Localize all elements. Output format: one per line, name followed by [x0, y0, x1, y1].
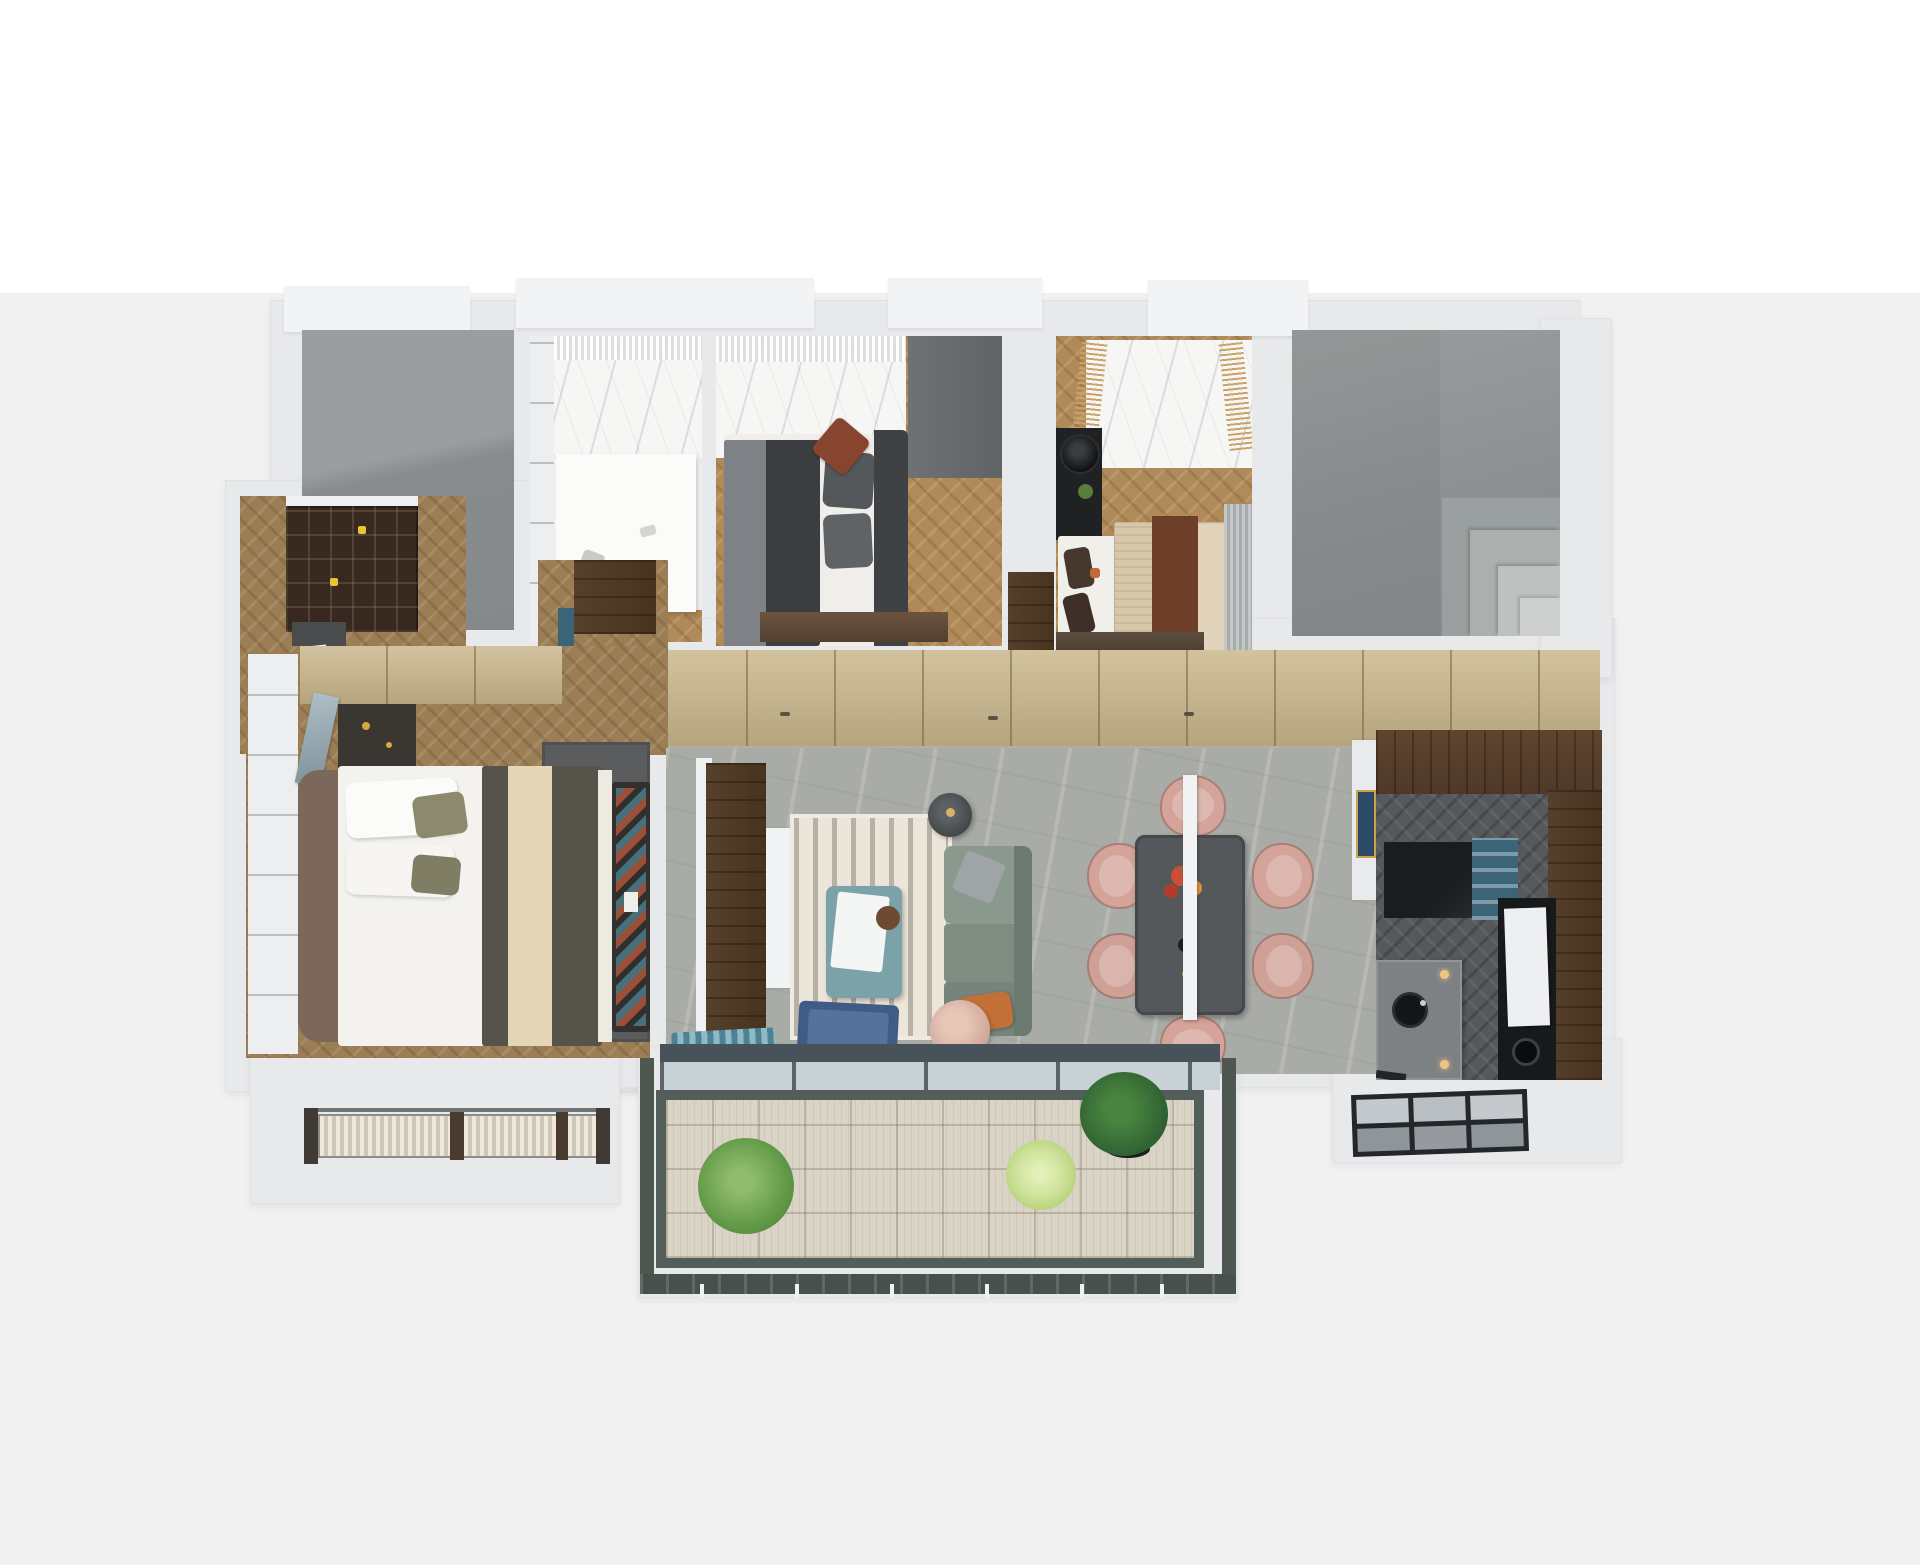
bookshelf-yellow-book-1: [358, 526, 366, 534]
cabinet-handle-3: [1184, 712, 1194, 716]
stair-core: [1292, 330, 1560, 636]
kitchen-art-frame: [1356, 790, 1376, 858]
kitchen-counter-top: [1376, 730, 1602, 794]
master-foot-bench: [612, 782, 650, 1032]
coffee-table-tray: [830, 891, 890, 972]
island-sink: [1392, 992, 1428, 1028]
glazing-pane: [1413, 1096, 1466, 1121]
bookshelf-grid: [286, 506, 418, 632]
railing-post-2: [795, 1284, 799, 1298]
pendant-bulb-1: [1440, 970, 1449, 979]
master-bedroom: [246, 646, 650, 1058]
cabinet-handle-2: [988, 716, 998, 720]
background-top-white: [0, 0, 1920, 293]
cabinet-handle-1: [780, 712, 790, 716]
fridge-white: [1504, 907, 1550, 1026]
parapet-closet: [516, 278, 814, 328]
bookshelf-yellow-book-2: [330, 578, 338, 586]
kitchen: [1376, 730, 1602, 1080]
balcony-shrub-green: [698, 1138, 794, 1234]
tv-wall-walnut: [706, 763, 766, 1053]
bench-white-card: [624, 892, 638, 912]
master-cabinets-top: [300, 646, 562, 704]
parapet-bedroom3: [888, 278, 1042, 328]
master-wardrobe-white: [248, 654, 298, 1054]
parapet-top-right: [1148, 280, 1308, 336]
pendant-bulb-2: [1440, 1060, 1449, 1069]
railing-post-4: [985, 1284, 989, 1298]
media-unit-white: [766, 828, 790, 988]
parapet-top-left: [284, 286, 470, 332]
railing-post-1: [700, 1284, 704, 1298]
master-olive-pillow-2: [410, 854, 461, 896]
vanity-gold-decor: [362, 722, 370, 730]
study-shelf-ledge: [286, 496, 418, 506]
stair-core-shadow: [1292, 330, 1440, 636]
balcony-grass-plant: [1006, 1140, 1076, 1210]
flower-centerpiece-dark: [1164, 884, 1178, 898]
balcony-stone-left: [640, 1058, 654, 1294]
chair-seat: [1099, 855, 1135, 897]
glass-wall-header: [660, 1044, 1220, 1062]
glazing-pane: [1470, 1094, 1523, 1119]
bay-window-cap-right: [596, 1108, 610, 1164]
bedroom2-foot-bench: [760, 612, 948, 642]
railing-post-6: [1160, 1284, 1164, 1298]
bedroom2-curtain: [716, 336, 906, 362]
step-4: [1520, 598, 1560, 636]
vanity-gold-decor-2: [386, 742, 392, 748]
bedroom3-curtain-panel: [1224, 504, 1252, 656]
glazing-pane: [1471, 1123, 1524, 1148]
master-headboard: [298, 770, 340, 1042]
master-olive-pillow-1: [411, 791, 468, 840]
glazing-pane: [1414, 1125, 1467, 1150]
balcony-potted-plant: [1080, 1072, 1168, 1156]
bedroom3-orange-accent: [1090, 568, 1100, 578]
floor-plan-render: [0, 0, 1920, 1565]
railing-post-5: [1080, 1284, 1084, 1298]
bedroom3-lamp: [1060, 434, 1100, 474]
chair-seat: [1099, 945, 1135, 987]
bedroom-2: [716, 336, 1002, 646]
master-duvet-cream-stripe: [508, 766, 552, 1046]
closet-curtain: [530, 336, 702, 360]
dining-chair-right-1: [1252, 843, 1314, 909]
railing-post-3: [890, 1284, 894, 1298]
glazing-pane: [1357, 1127, 1410, 1152]
floor-lamp-bulb: [946, 808, 955, 817]
hallway-timber-door: [574, 560, 656, 634]
dining-chair-right-2: [1252, 933, 1314, 999]
balcony-stone-bottom: [640, 1274, 1236, 1294]
linear-pendant: [1183, 775, 1197, 1020]
bay-window-mullion-1: [450, 1112, 464, 1160]
balcony-stone-right: [1222, 1058, 1236, 1294]
bedroom2-pillow-2: [823, 513, 874, 569]
bedroom3-plant: [1078, 484, 1093, 499]
living-dining-area: [666, 748, 1384, 1074]
island-faucet: [1420, 1000, 1426, 1006]
bay-window-cap-left: [304, 1108, 318, 1164]
coffee-table-basket: [876, 906, 900, 930]
chair-seat: [1266, 855, 1302, 897]
service-balcony-glazing: [1351, 1089, 1529, 1157]
kitchen-counter-right: [1548, 790, 1602, 1080]
bedroom-3: [1056, 336, 1252, 656]
sofa-armrest: [1014, 846, 1032, 1036]
master-mattress-edge: [598, 770, 612, 1042]
sofa-seat-1: [944, 924, 1018, 982]
bedroom2-wardrobe: [908, 336, 1002, 478]
bay-window-mullion-2: [556, 1112, 568, 1160]
chair-seat: [1266, 945, 1302, 987]
glazing-pane: [1356, 1098, 1409, 1123]
gas-hob: [1512, 1038, 1540, 1066]
bedroom3-door: [1008, 572, 1054, 660]
